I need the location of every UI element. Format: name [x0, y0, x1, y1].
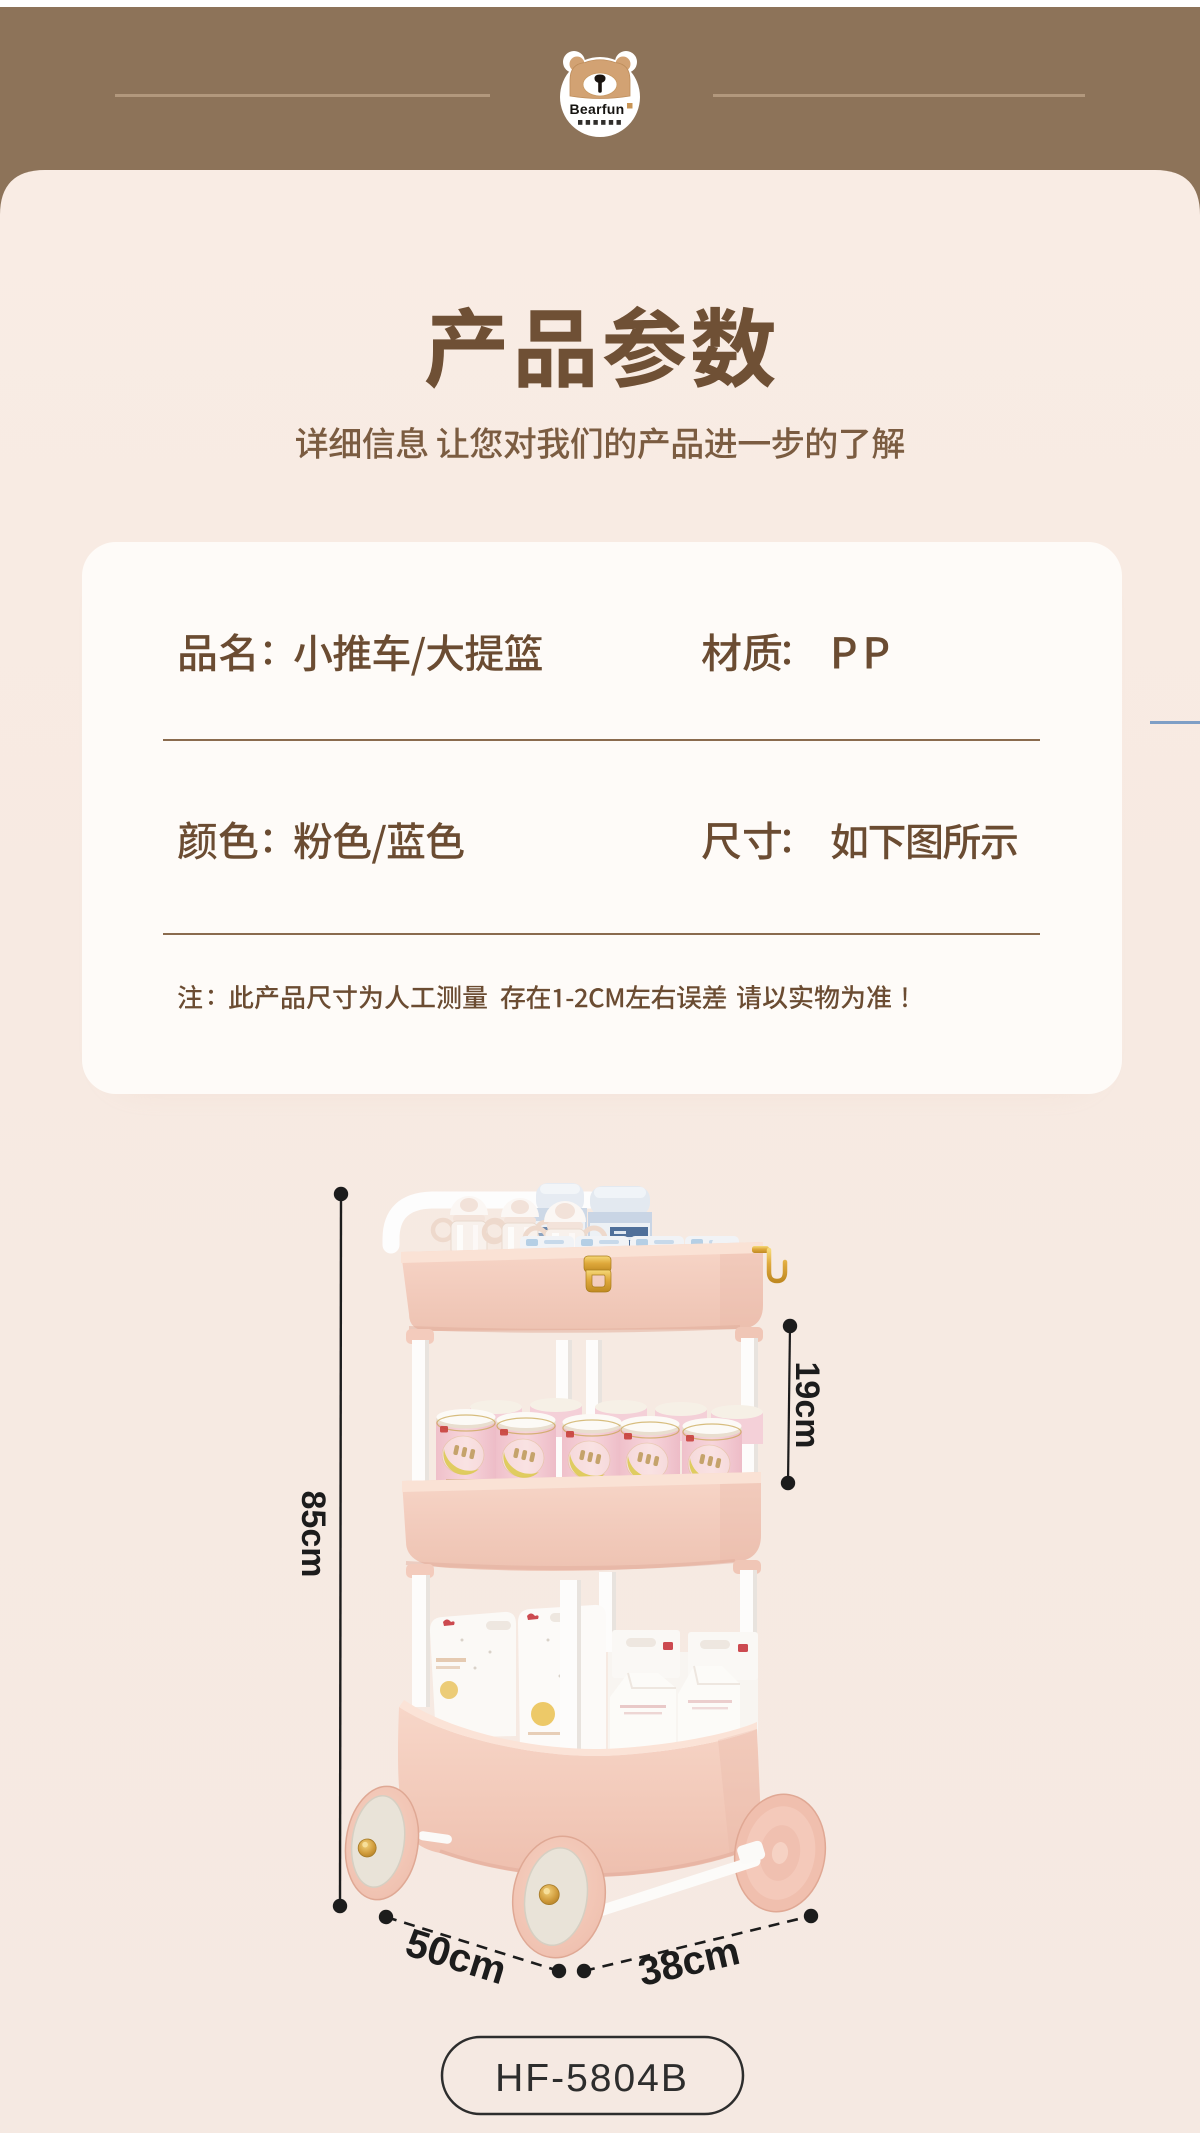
- svg-text:85cm: 85cm: [294, 1491, 332, 1578]
- svg-text:HF-5804B: HF-5804B: [495, 2057, 689, 2100]
- svg-text:Bearfun: Bearfun: [570, 101, 625, 117]
- svg-text:19cm: 19cm: [788, 1362, 826, 1449]
